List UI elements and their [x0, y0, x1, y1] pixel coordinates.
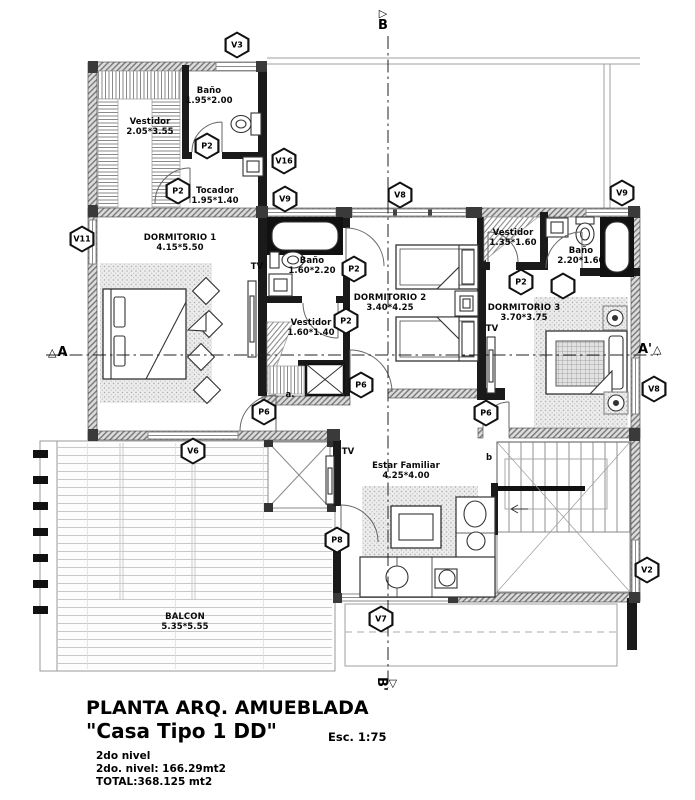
- section-marker-b-bottom: ▷ B': [375, 677, 399, 691]
- misc-label: b: [486, 453, 492, 463]
- drawing-subtitle: "Casa Tipo 1 DD": [86, 719, 277, 743]
- hex-marker: P6: [474, 400, 499, 427]
- drawing-scale: Esc. 1:75: [328, 730, 387, 744]
- room-label: DORMITORIO 14.15*5.50: [144, 233, 216, 253]
- drawing-note: 2do. nivel: 166.29mt2: [96, 763, 226, 775]
- misc-label: TV: [251, 262, 263, 272]
- room-label: DORMITORIO 33.70*3.75: [488, 303, 560, 323]
- plan-overlay: Vestidor2.05*3.55Baño1.95*2.00Tocador1.9…: [0, 0, 695, 800]
- section-triangle-icon: ▷: [388, 680, 399, 688]
- hex-marker: V6: [181, 438, 206, 465]
- section-letter: A: [57, 346, 67, 359]
- drawing-note: TOTAL:368.125 mt2: [96, 776, 212, 788]
- drawing-title: PLANTA ARQ. AMUEBLADA: [86, 697, 369, 719]
- section-triangle-icon: △: [48, 347, 56, 358]
- hex-marker: V3: [225, 32, 250, 59]
- page: Vestidor2.05*3.55Baño1.95*2.00Tocador1.9…: [0, 0, 695, 800]
- hex-marker: V11: [70, 226, 95, 253]
- hex-marker: V2: [635, 557, 660, 584]
- room-label: Baño1.60*2.20: [288, 256, 335, 276]
- section-marker-a-left: △ A: [48, 346, 68, 359]
- hex-marker: P8: [325, 527, 350, 554]
- misc-label: a.: [286, 390, 295, 400]
- misc-label: TV: [486, 324, 498, 334]
- hex-marker: P2: [166, 178, 191, 205]
- drawing-note: 2do nivel: [96, 750, 150, 762]
- hex-marker: P2: [195, 133, 220, 160]
- section-marker-a-right: A' △: [638, 343, 662, 356]
- hex-marker: P2: [509, 269, 534, 296]
- section-triangle-icon: △: [653, 344, 661, 355]
- room-label: Tocador1.95*1.40: [191, 186, 238, 206]
- hex-marker: V16: [272, 148, 297, 175]
- hex-marker: P6: [349, 372, 374, 399]
- hex-marker: P2: [342, 256, 367, 283]
- room-label: Vestidor1.60*1.40: [287, 318, 334, 338]
- misc-label: TV: [342, 447, 354, 457]
- hex-marker: V9: [610, 180, 635, 207]
- hex-marker: V9: [273, 186, 298, 213]
- hex-marker: V7: [369, 606, 394, 633]
- room-label: Baño1.95*2.00: [185, 86, 232, 106]
- room-label: Estar Familiar4.25*4.00: [372, 461, 440, 481]
- hex-marker: [551, 273, 576, 300]
- room-label: Vestidor2.05*3.55: [126, 117, 173, 137]
- hex-marker: P6: [252, 399, 277, 426]
- section-letter: A': [638, 343, 652, 356]
- room-label: Vestidor1.35*1.60: [489, 228, 536, 248]
- section-marker-b-top: ▷ B: [378, 8, 388, 32]
- hex-marker: V8: [642, 376, 667, 403]
- room-label: Baño2.20*1.60: [557, 246, 604, 266]
- section-letter: B': [375, 677, 388, 691]
- hex-marker: V8: [388, 182, 413, 209]
- room-label: DORMITORIO 23.40*4.25: [354, 293, 426, 313]
- section-letter: B: [378, 19, 388, 32]
- room-label: BALCON5.35*5.55: [161, 612, 208, 632]
